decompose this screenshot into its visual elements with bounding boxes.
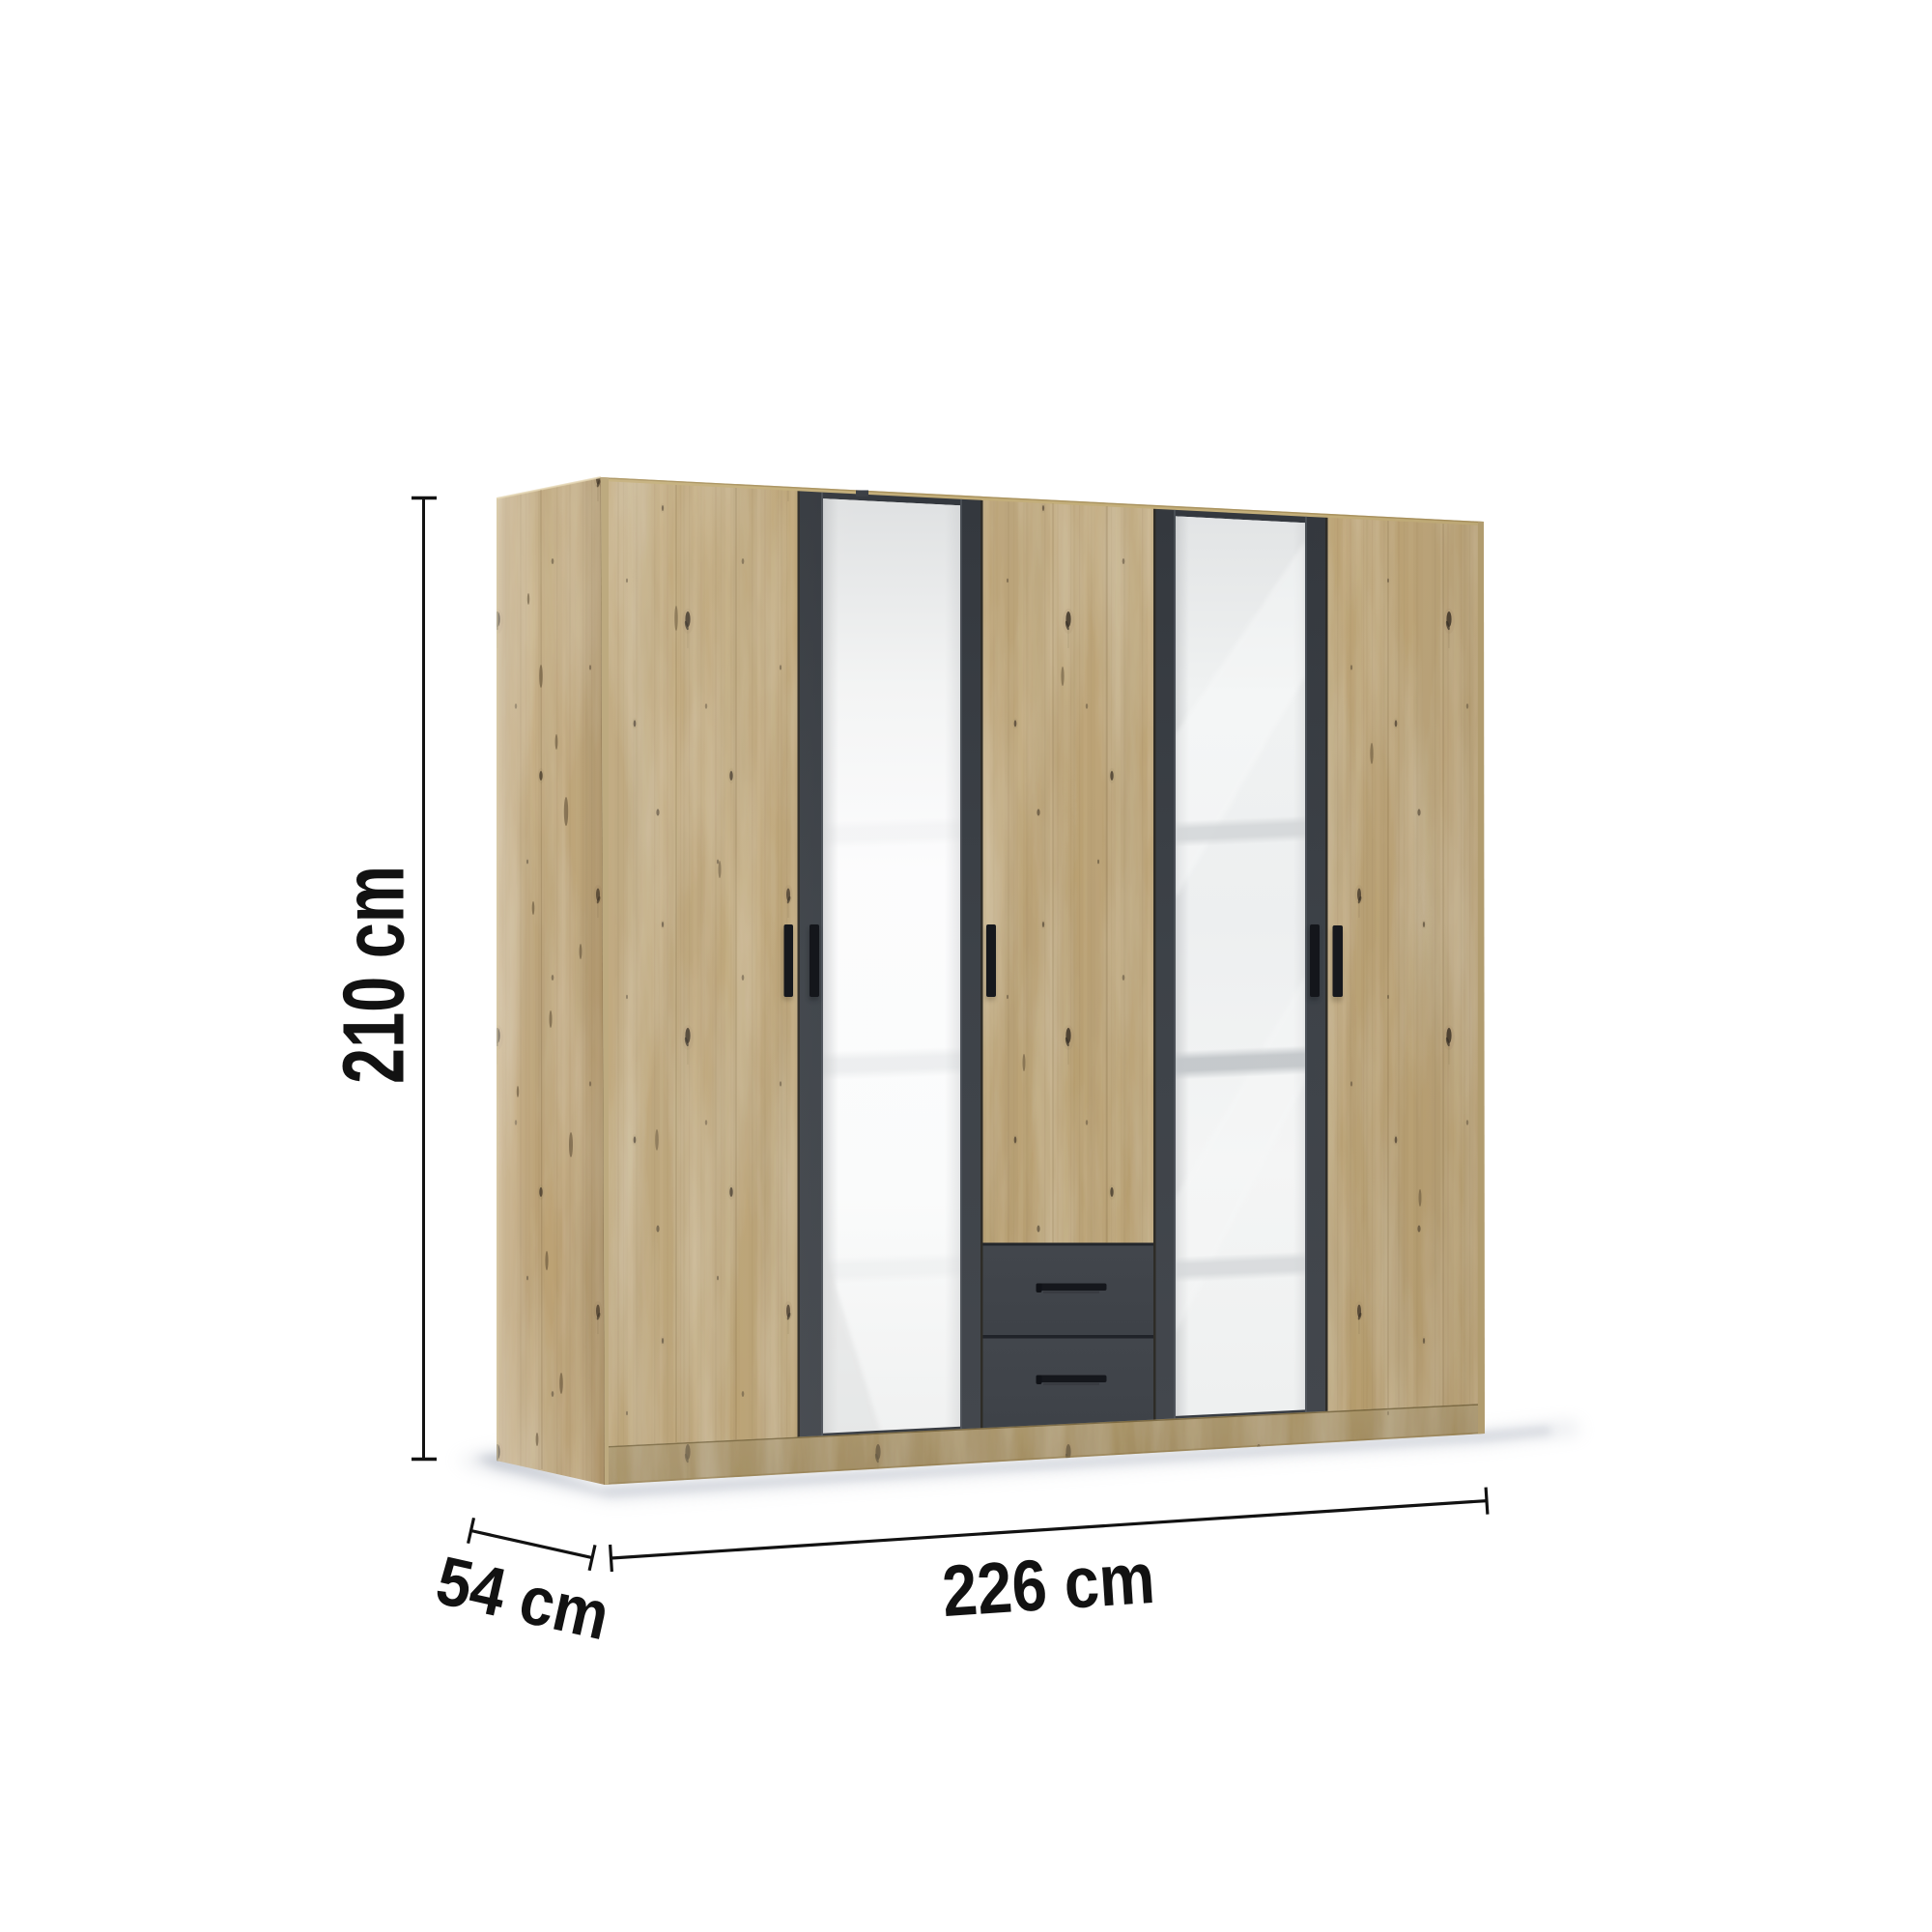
svg-text:210 cm: 210 cm [327,866,423,1084]
svg-text:226 cm: 226 cm [940,1537,1157,1632]
